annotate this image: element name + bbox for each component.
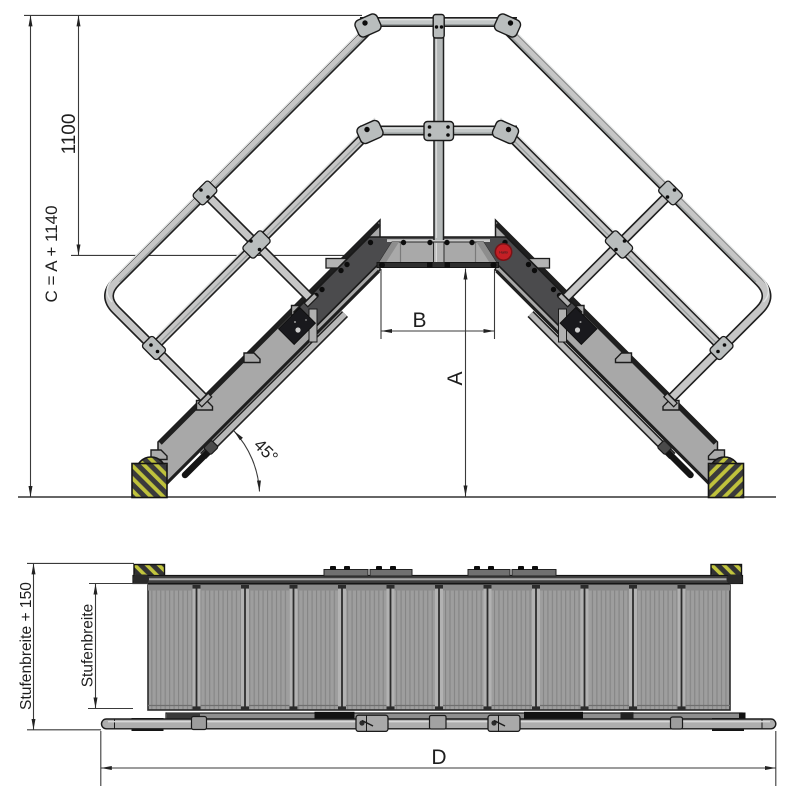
svg-text:45°: 45°	[250, 435, 282, 467]
svg-text:B: B	[412, 309, 426, 332]
svg-text:Hailo: Hailo	[499, 251, 508, 255]
svg-text:D: D	[431, 746, 446, 769]
svg-text:C = A + 1140: C = A + 1140	[42, 205, 61, 302]
svg-text:Stufenbreite: Stufenbreite	[80, 604, 97, 688]
svg-text:A: A	[444, 371, 467, 385]
svg-text:1100: 1100	[59, 114, 80, 155]
svg-text:Stufenbreite + 150: Stufenbreite + 150	[18, 582, 35, 710]
